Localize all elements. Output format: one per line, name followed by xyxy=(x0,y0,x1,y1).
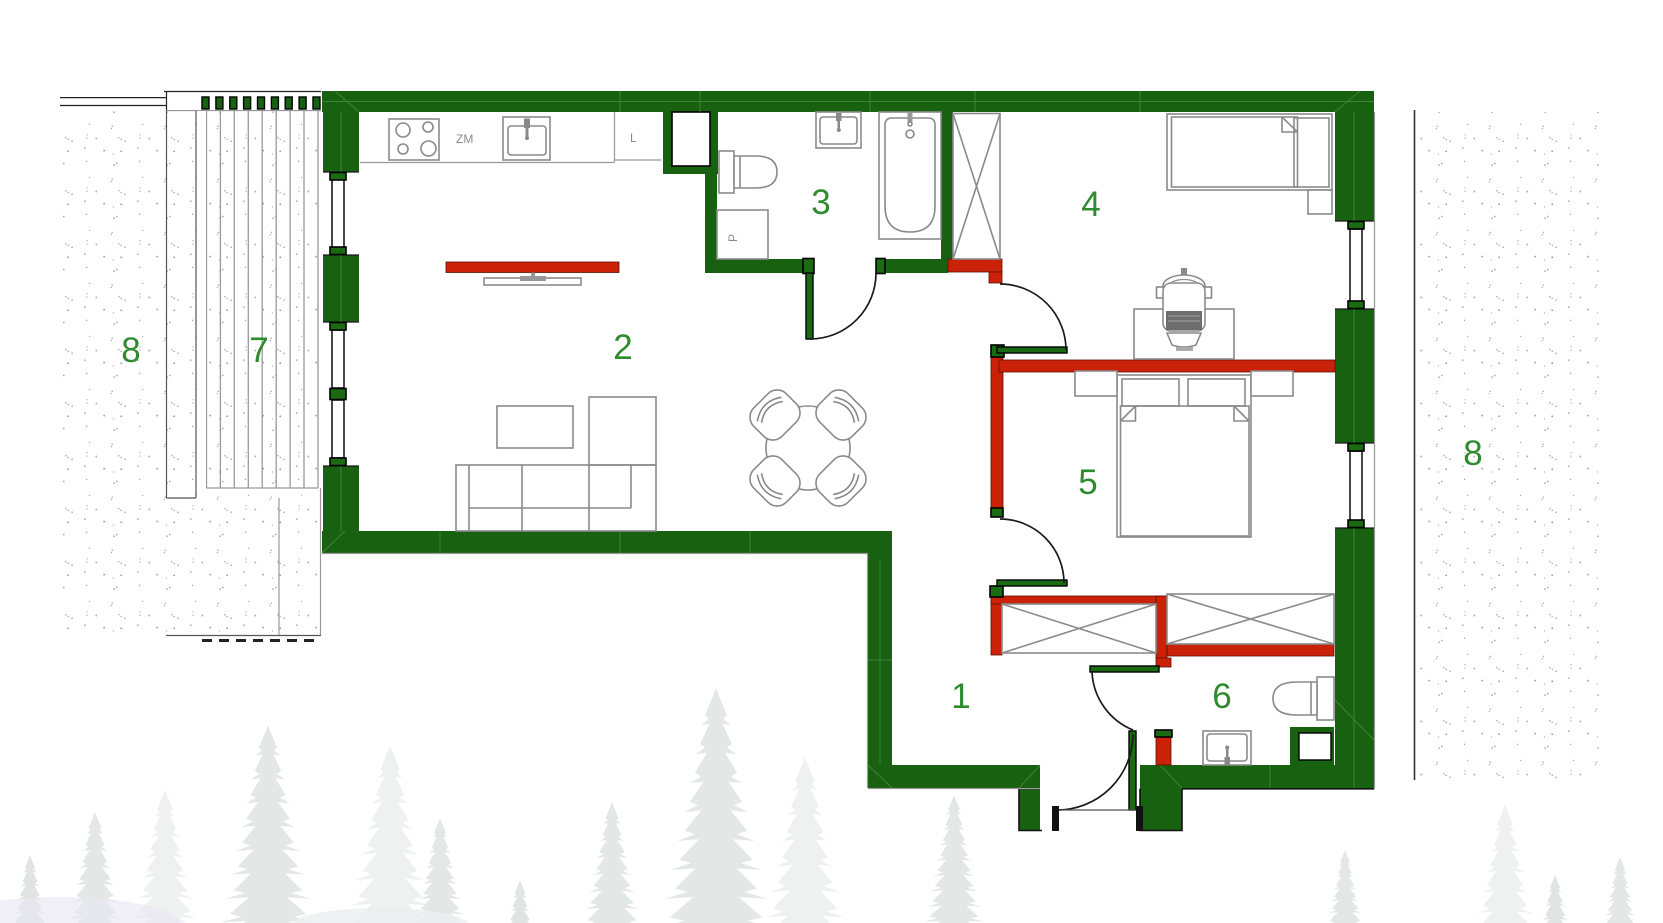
svg-text:1: 1 xyxy=(951,677,970,716)
svg-text:L: L xyxy=(630,131,637,145)
svg-text:8: 8 xyxy=(1463,434,1482,473)
svg-text:5: 5 xyxy=(1078,463,1097,502)
svg-text:P: P xyxy=(726,234,740,242)
svg-text:8: 8 xyxy=(121,331,140,370)
svg-text:ZM: ZM xyxy=(456,132,473,146)
svg-text:2: 2 xyxy=(613,328,632,367)
svg-text:6: 6 xyxy=(1212,677,1231,716)
svg-text:3: 3 xyxy=(811,183,830,222)
svg-text:4: 4 xyxy=(1081,185,1100,224)
svg-text:7: 7 xyxy=(249,331,268,370)
